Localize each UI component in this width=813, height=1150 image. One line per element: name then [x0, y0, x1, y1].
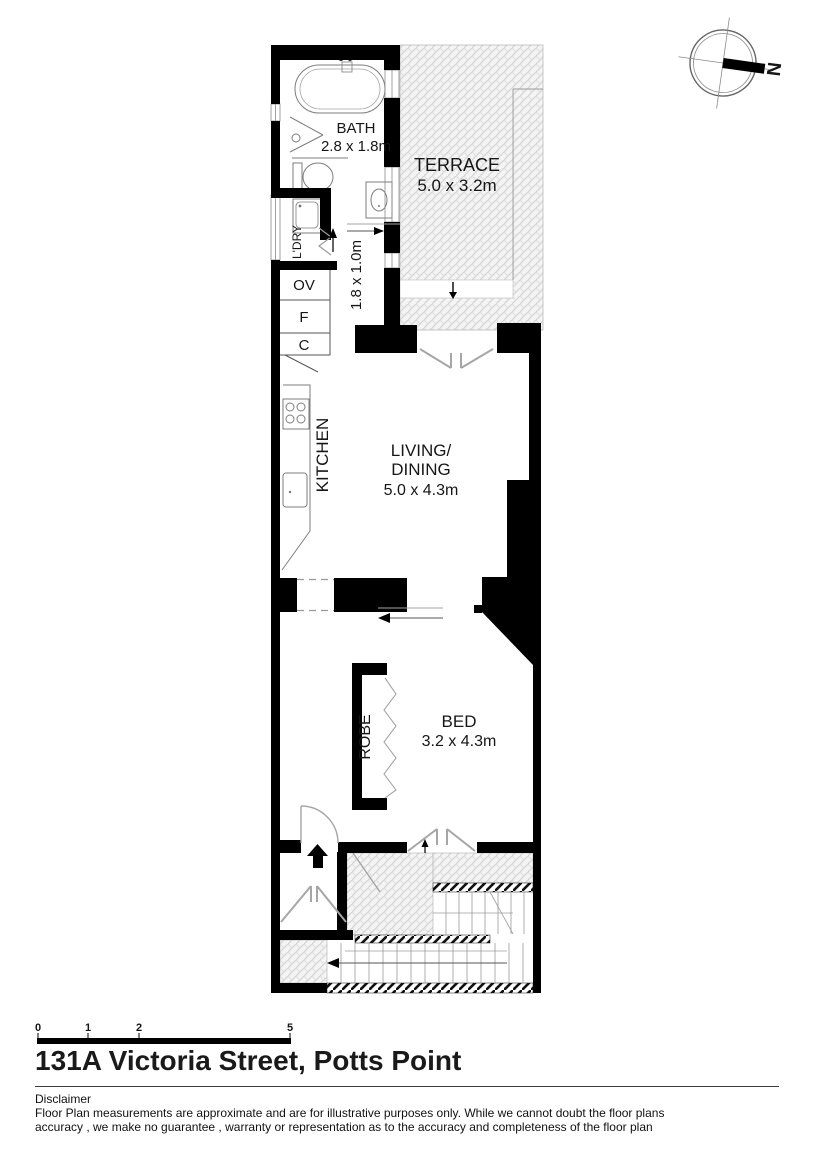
scale-label-0: 0 — [35, 1022, 41, 1034]
bed-label: BED — [442, 712, 477, 731]
terrace-label: TERRACE — [414, 155, 500, 175]
scale-label-1: 1 — [85, 1022, 91, 1034]
disclaimer-line-2: accuracy , we make no guarantee , warran… — [35, 1120, 653, 1134]
entry-arrow-icon — [307, 844, 328, 868]
bath-window — [271, 104, 280, 121]
toilet-icon — [293, 163, 333, 191]
laundry-label: L'DRY — [290, 225, 304, 259]
bed-dims: 3.2 x 4.3m — [422, 733, 497, 750]
kitchen-sink-icon — [283, 473, 307, 507]
kitchen-label: KITCHEN — [313, 418, 332, 493]
laundry-window — [271, 195, 280, 260]
vestibule-french-doors — [281, 886, 346, 922]
terrace-step — [400, 280, 513, 298]
disclaimer-heading: Disclaimer — [35, 1092, 91, 1106]
living-dims: 5.0 x 4.3m — [384, 482, 459, 499]
stairs-area — [280, 853, 533, 993]
stair-nosing-top — [433, 883, 533, 892]
robe-rail-zigzag — [384, 678, 396, 798]
stair-direction-arrow-icon — [327, 958, 507, 968]
hall-dims: 1.8 x 1.0m — [348, 240, 365, 310]
bathtub-icon — [295, 57, 385, 113]
compass-icon: N — [672, 11, 784, 115]
scale-label-2: 2 — [136, 1022, 142, 1034]
compass-north-label: N — [762, 61, 785, 77]
stair-nosing-mid — [355, 935, 490, 943]
bath-dims: 2.8 x 1.8m — [321, 138, 391, 155]
terrace-wall-window-2 — [385, 167, 399, 222]
terrace-wall-window-3 — [385, 253, 399, 268]
disclaimer-line-1: Floor Plan measurements are approximate … — [35, 1106, 664, 1120]
terrace-dims: 5.0 x 3.2m — [417, 176, 496, 195]
living-label-2: DINING — [391, 460, 451, 479]
oven-label: OV — [293, 277, 315, 294]
cupboard-label: C — [299, 337, 310, 354]
vanity-icon — [366, 182, 392, 218]
stove-icon — [283, 399, 309, 429]
cased-opening — [297, 580, 334, 611]
living-label-1: LIVING/ — [391, 441, 452, 460]
entry-door-swing — [301, 806, 338, 843]
terrace-french-doors — [420, 349, 493, 368]
floor-plan-page: N 0 1 2 5 BATH 2.8 x 1.8m TERRACE 5.0 x … — [0, 0, 813, 1150]
terrace-wall-window-1 — [385, 70, 399, 98]
shower-icon — [290, 117, 323, 152]
robe-label: ROBE — [357, 714, 374, 759]
stair-nosing-bottom — [327, 983, 533, 993]
kitchen-bench — [282, 385, 310, 570]
title-divider — [35, 1086, 779, 1087]
floor-plan-svg: N 0 1 2 5 BATH 2.8 x 1.8m TERRACE 5.0 x … — [0, 0, 813, 1150]
scale-label-5: 5 — [287, 1022, 293, 1034]
bed-french-doors — [408, 829, 475, 851]
fridge-label: F — [299, 309, 308, 326]
bath-label: BATH — [337, 120, 376, 137]
page-title: 131A Victoria Street, Potts Point — [35, 1045, 461, 1077]
scale-bar: 0 1 2 5 — [35, 1022, 293, 1044]
stair-treads-upper — [433, 892, 524, 934]
